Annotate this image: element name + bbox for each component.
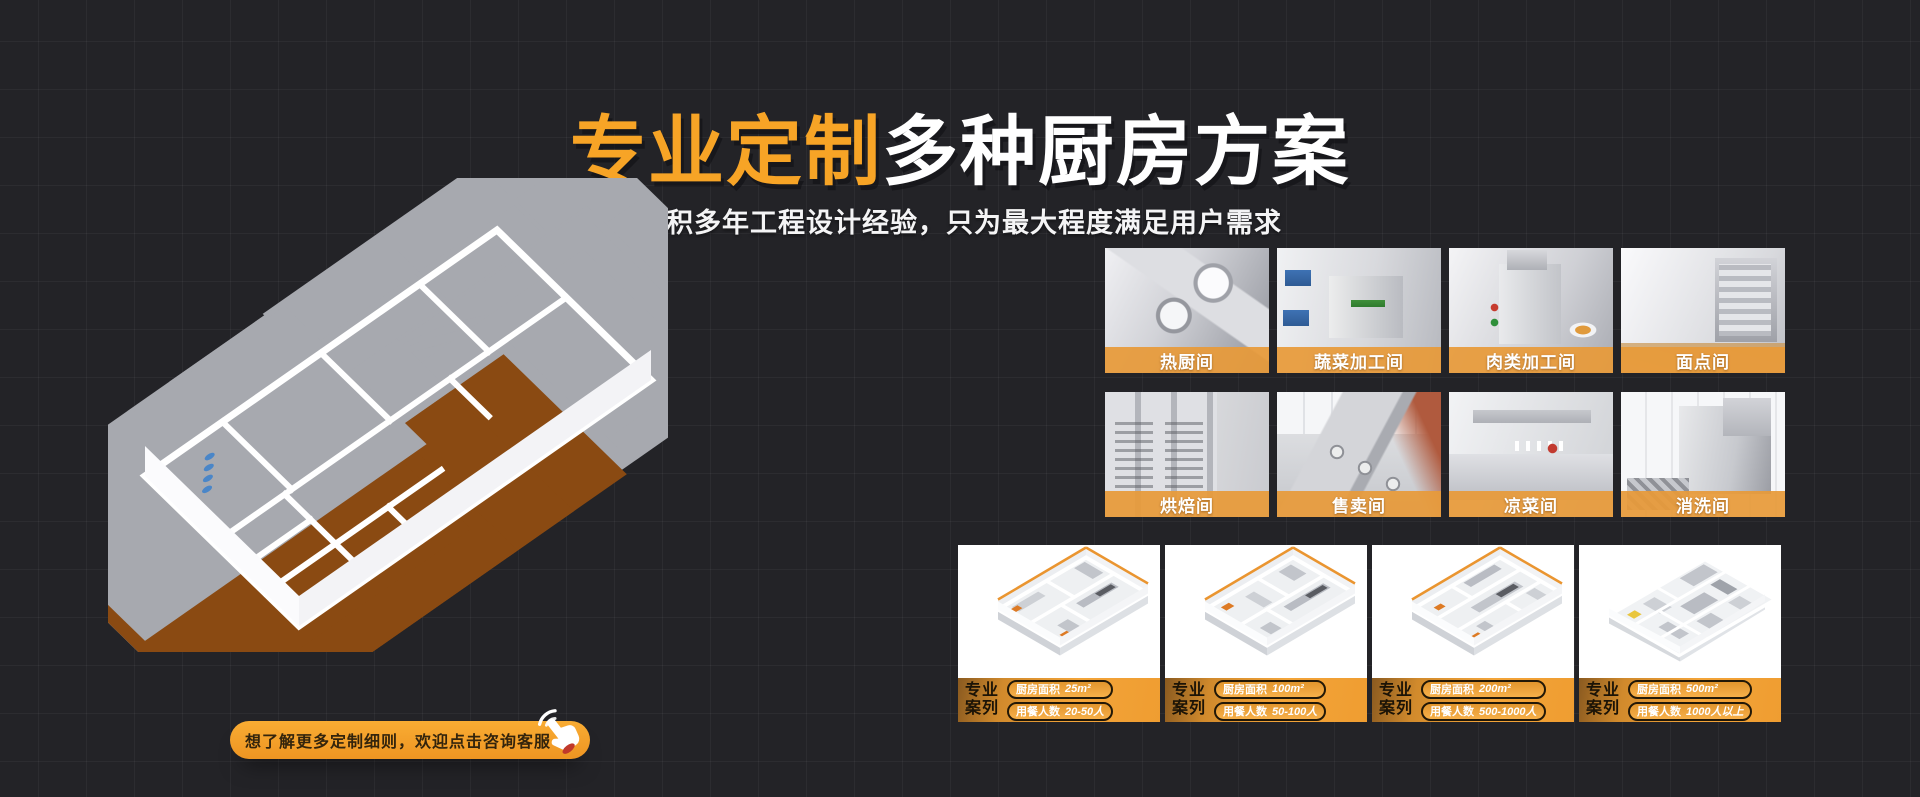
case-info-bar: 专业案列 厨房面积200m² 用餐人数500-1000人 xyxy=(1372,678,1574,722)
case-floorplan-image xyxy=(958,545,1160,678)
tile-label: 肉类加工间 xyxy=(1449,347,1613,373)
case-diners: 用餐人数20-50人 xyxy=(1007,702,1113,721)
tile-label: 消洗间 xyxy=(1621,491,1785,517)
case-floorplan-image xyxy=(1579,545,1781,678)
case-card-500m2: 专业案列 厨房面积500m² 用餐人数1000人以上 xyxy=(1579,545,1781,722)
consult-cta-label: 想了解更多定制细则，欢迎点击咨询客服 xyxy=(245,728,551,752)
case-card-25m2: 专业案列 厨房面积25m² 用餐人数20-50人 xyxy=(958,545,1160,722)
case-card-100m2: 专业案列 厨房面积100m² 用餐人数50-100人 xyxy=(1165,545,1367,722)
case-floorplan-image xyxy=(1372,545,1574,678)
title-rest: 多种厨房方案 xyxy=(882,110,1350,195)
case-badge: 专业案列 xyxy=(963,682,1001,719)
case-info-bar: 专业案列 厨房面积500m² 用餐人数1000人以上 xyxy=(1579,678,1781,722)
case-badge: 专业案列 xyxy=(1170,682,1208,719)
tile-label: 凉菜间 xyxy=(1449,491,1613,517)
consult-cta-button[interactable]: 想了解更多定制细则，欢迎点击咨询客服 xyxy=(230,721,590,759)
tile-baking-room: 烘焙间 xyxy=(1105,392,1269,517)
kitchen-solutions-banner: 专业定制多种厨房方案 累积多年工程设计经验，只为最大程度满足用户需求 xyxy=(0,0,1920,797)
case-area: 厨房面积500m² xyxy=(1628,680,1752,699)
tile-vegetable-processing: 蔬菜加工间 xyxy=(1277,248,1441,373)
case-card-200m2: 专业案列 厨房面积200m² 用餐人数500-1000人 xyxy=(1372,545,1574,722)
tile-cold-dish-room: 凉菜间 xyxy=(1449,392,1613,517)
case-area: 厨房面积200m² xyxy=(1421,680,1546,699)
kitchen-floorplan-3d-render xyxy=(108,178,668,652)
tile-meat-processing: 肉类加工间 xyxy=(1449,248,1613,373)
tile-label: 面点间 xyxy=(1621,347,1785,373)
tile-label: 蔬菜加工间 xyxy=(1277,347,1441,373)
tile-label: 售卖间 xyxy=(1277,491,1441,517)
case-area: 厨房面积100m² xyxy=(1214,680,1326,699)
tile-dishwashing-room: 消洗间 xyxy=(1621,392,1785,517)
case-diners: 用餐人数1000人以上 xyxy=(1628,702,1752,721)
room-gallery: 热厨间 蔬菜加工间 肉类加工间 面点间 烘焙间 售卖间 凉菜间 消洗间 xyxy=(1105,248,1785,517)
case-badge: 专业案列 xyxy=(1584,682,1622,719)
tile-pastry-room: 面点间 xyxy=(1621,248,1785,373)
case-row: 专业案列 厨房面积25m² 用餐人数20-50人 xyxy=(958,545,1781,722)
tile-label: 热厨间 xyxy=(1105,347,1269,373)
case-info-bar: 专业案列 厨房面积25m² 用餐人数20-50人 xyxy=(958,678,1160,722)
case-diners: 用餐人数500-1000人 xyxy=(1421,702,1546,721)
case-info-bar: 专业案列 厨房面积100m² 用餐人数50-100人 xyxy=(1165,678,1367,722)
tile-label: 烘焙间 xyxy=(1105,491,1269,517)
case-area: 厨房面积25m² xyxy=(1007,680,1113,699)
case-diners: 用餐人数50-100人 xyxy=(1214,702,1326,721)
tile-hot-kitchen: 热厨间 xyxy=(1105,248,1269,373)
case-badge: 专业案列 xyxy=(1377,682,1415,719)
case-floorplan-image xyxy=(1165,545,1367,678)
tile-sales-room: 售卖间 xyxy=(1277,392,1441,517)
